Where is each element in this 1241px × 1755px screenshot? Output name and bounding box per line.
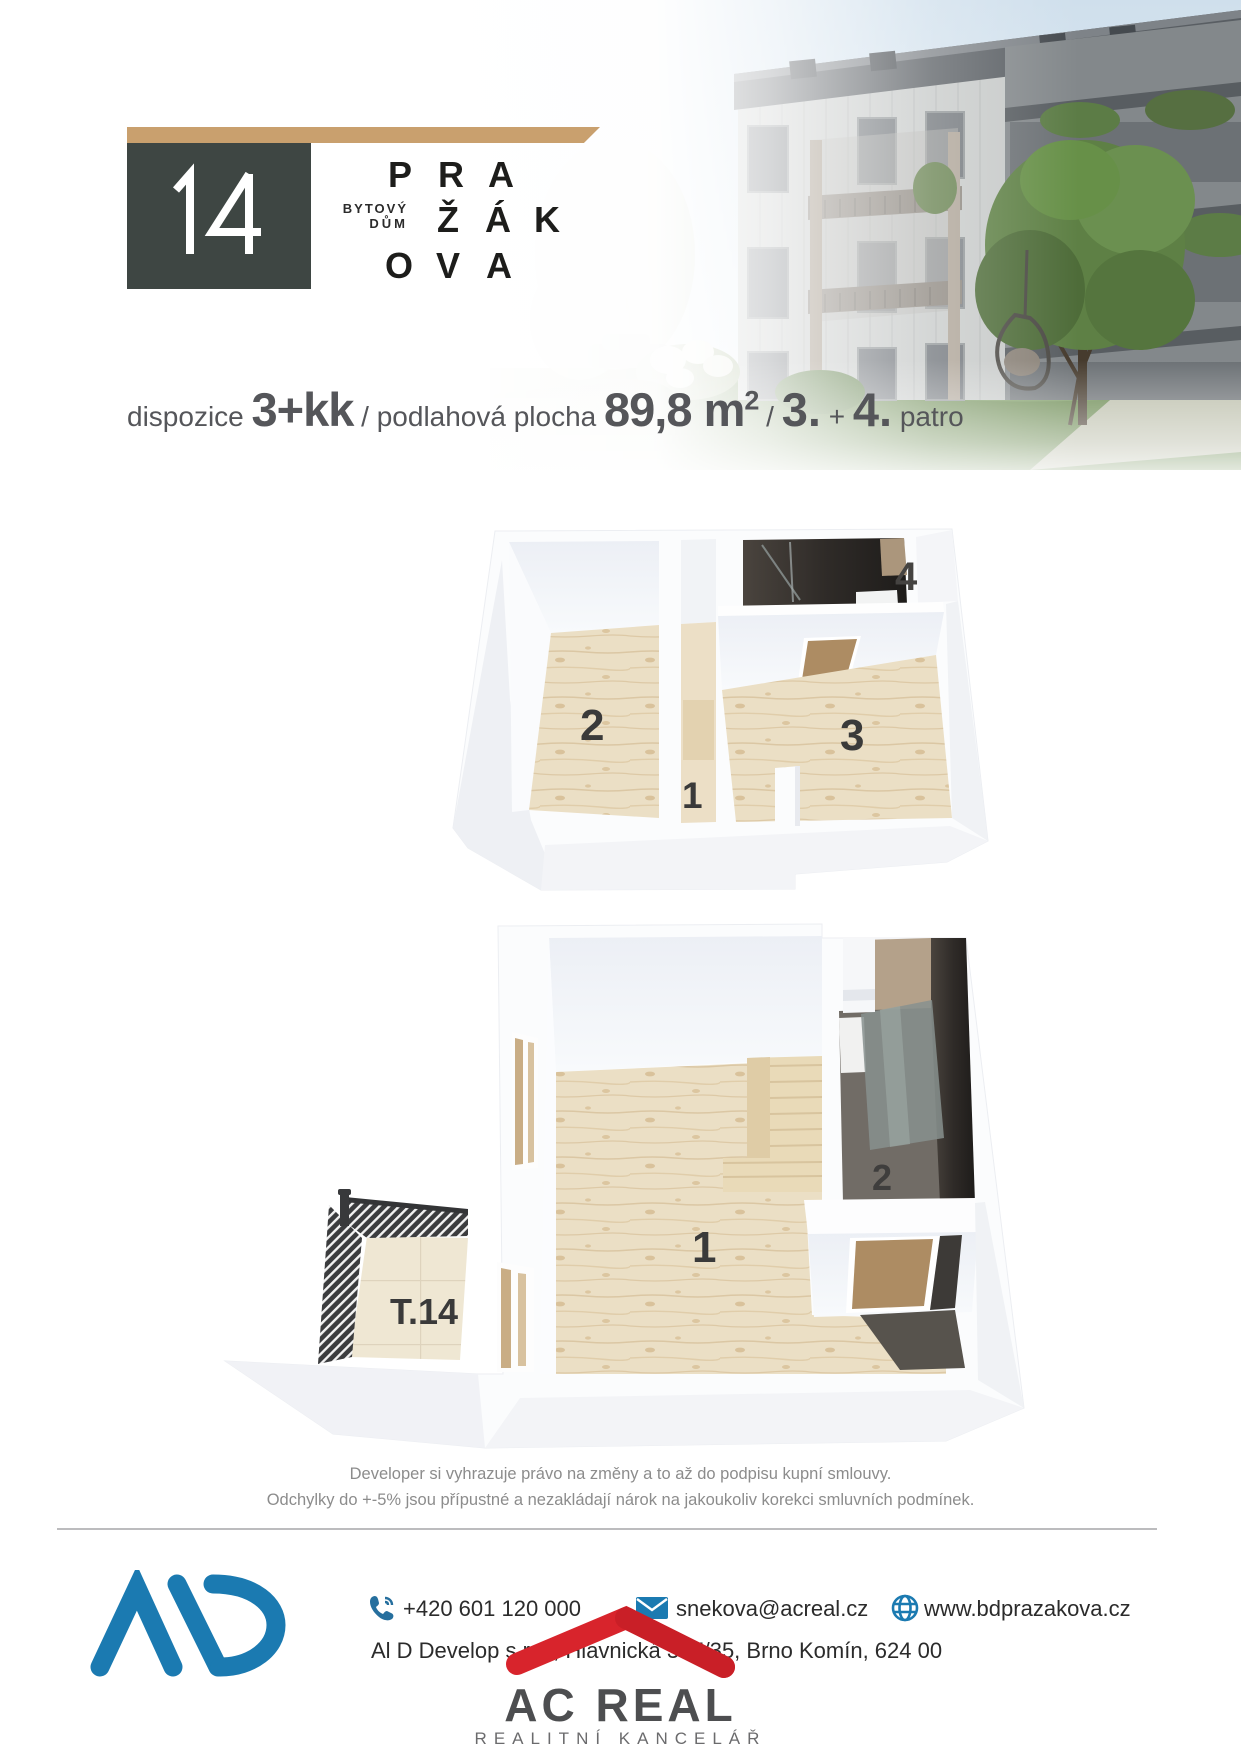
- svg-text:1: 1: [692, 1223, 716, 1272]
- svg-text:2: 2: [872, 1157, 892, 1198]
- svg-text:3: 3: [840, 711, 864, 760]
- svg-text:4: 4: [895, 555, 918, 599]
- svg-text:1: 1: [682, 775, 703, 816]
- svg-text:T.14: T.14: [390, 1291, 458, 1332]
- svg-text:2: 2: [580, 701, 604, 750]
